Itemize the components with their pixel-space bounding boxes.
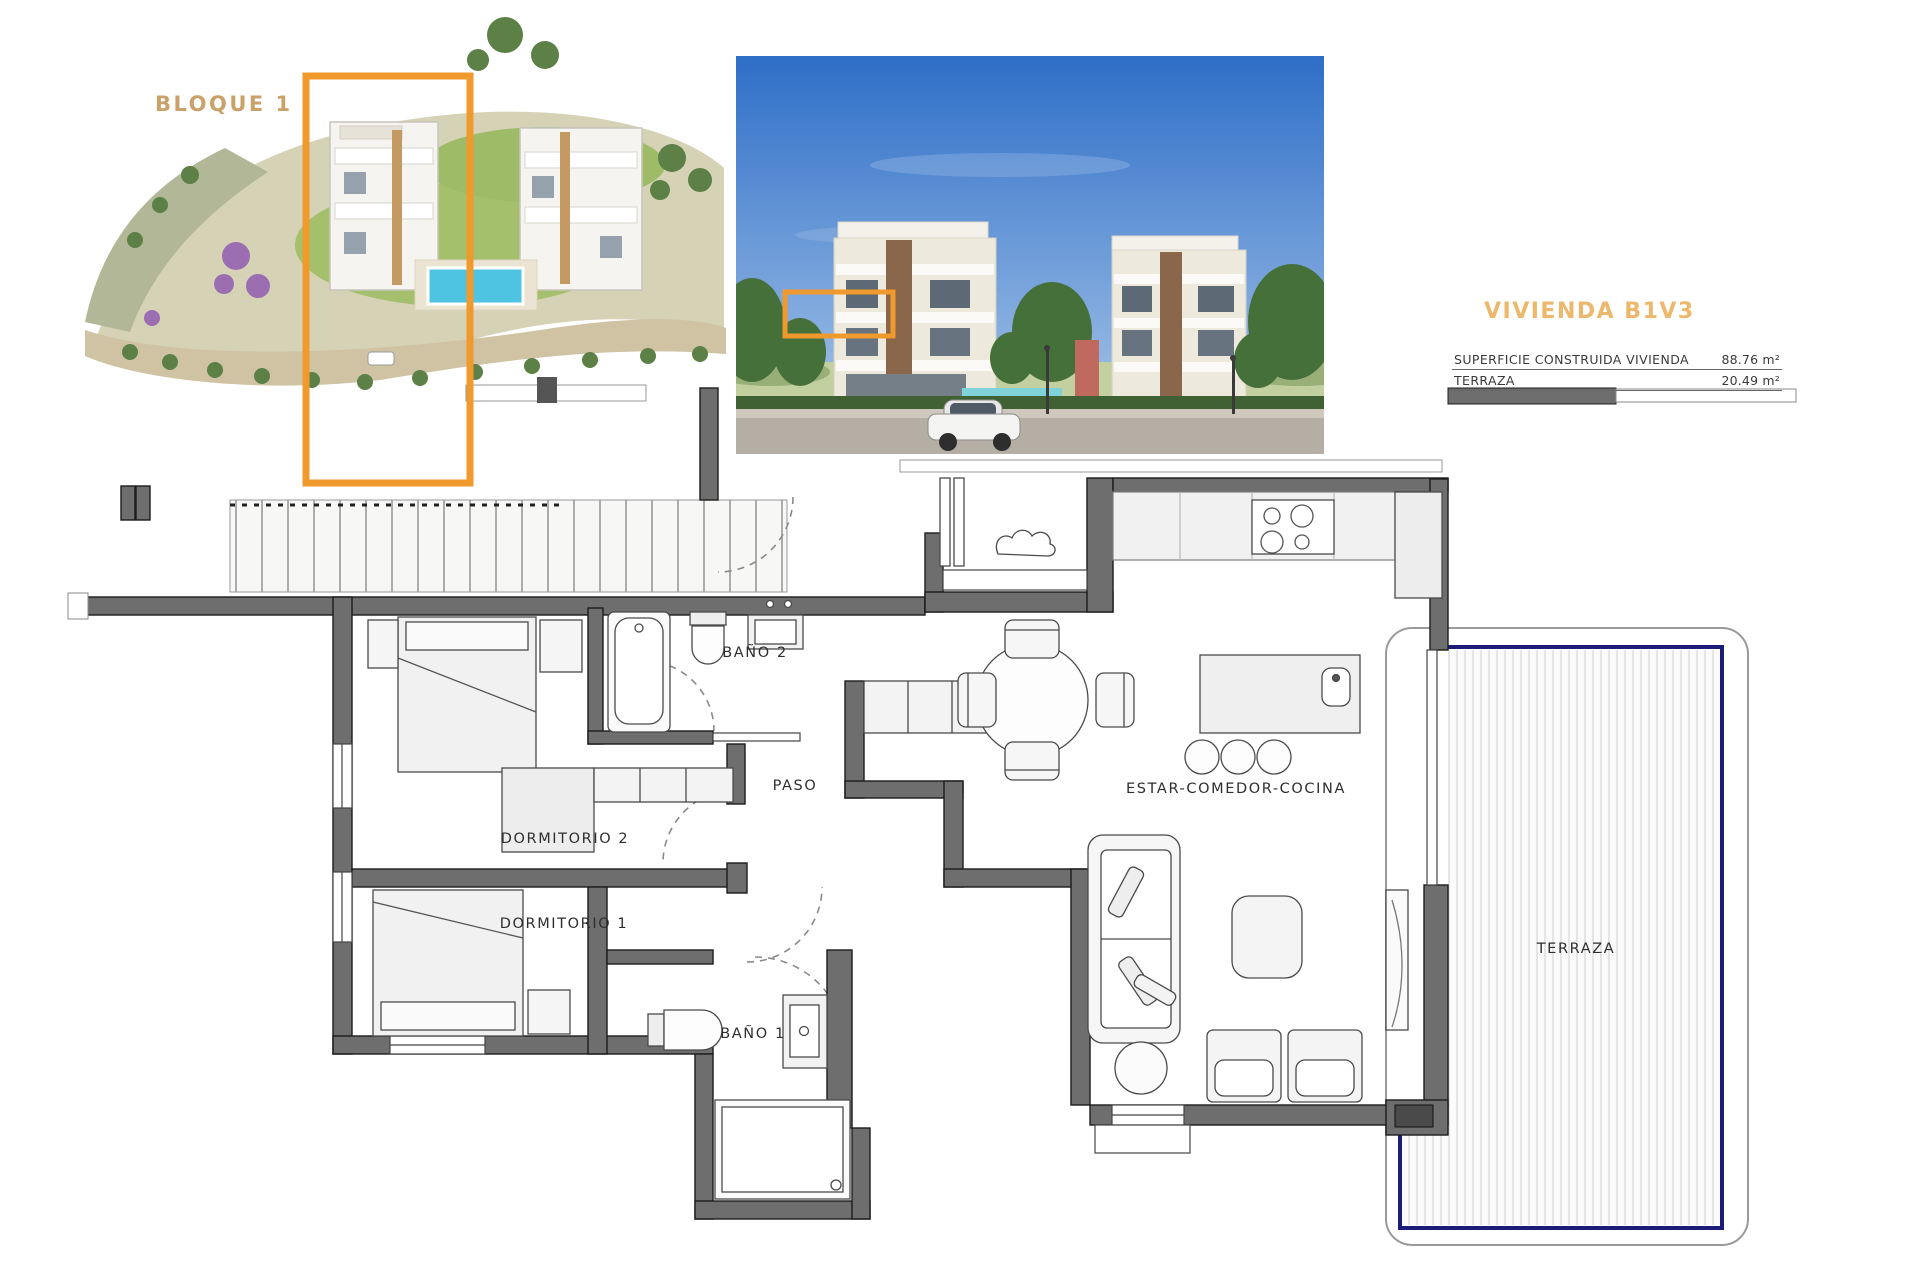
brochure-page: BLOQUE 1 VIVIENDA B1V3 SUPERFICIE CONSTR… (0, 0, 1920, 1280)
room-label-dormitorio-1: DORMITORIO 1 (500, 916, 629, 932)
street-building-right (1112, 236, 1246, 402)
room-label-bano-2: BAÑO 2 (722, 645, 788, 661)
area-label: SUPERFICIE CONSTRUIDA VIVIENDA (1454, 352, 1689, 367)
area-table-row: SUPERFICIE CONSTRUIDA VIVIENDA 88.76 m² (1452, 349, 1782, 370)
red-walkway (1075, 340, 1099, 402)
room-label-bano-1: BAÑO 1 (720, 1026, 786, 1042)
street-render-illustration (710, 56, 1370, 454)
block-label: BLOQUE 1 (155, 92, 293, 116)
room-label-terraza: TERRAZA (1537, 941, 1616, 957)
area-table: SUPERFICIE CONSTRUIDA VIVIENDA 88.76 m² … (1452, 349, 1782, 391)
room-label-paso: PASO (773, 778, 818, 794)
area-value: 88.76 m² (1721, 352, 1780, 367)
area-value: 20.49 m² (1721, 373, 1780, 388)
area-table-row: TERRAZA 20.49 m² (1452, 370, 1782, 391)
page-graphics (0, 0, 1920, 1280)
room-label-estar-comedor-cocina: ESTAR-COMEDOR-COCINA (1126, 781, 1346, 797)
aerial-building-right (520, 128, 642, 290)
pool (428, 268, 523, 304)
unit-title: VIVIENDA B1V3 (1484, 299, 1695, 324)
car-aerial (368, 352, 394, 365)
room-label-dormitorio-2: DORMITORIO 2 (501, 831, 630, 847)
street-building-left (834, 222, 996, 406)
area-label: TERRAZA (1454, 373, 1515, 388)
